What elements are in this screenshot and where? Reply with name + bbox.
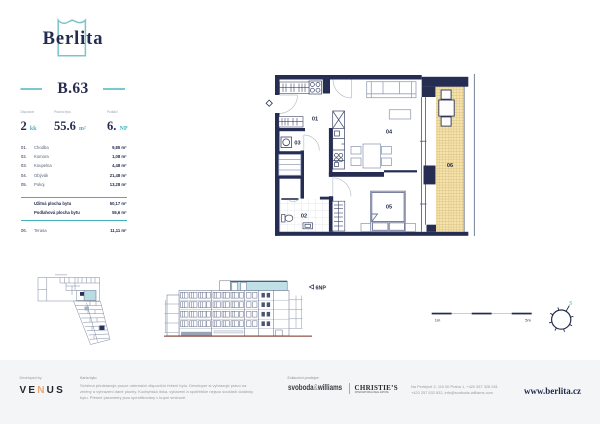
svg-text:04: 04 [386,130,393,136]
svg-text:02: 02 [301,213,307,219]
svg-text:S: S [569,300,572,307]
svg-text:5m: 5m [525,318,531,323]
svg-text:05: 05 [386,204,392,210]
svg-text:03: 03 [294,140,300,146]
svg-text:6NP: 6NP [316,285,327,291]
svg-text:06: 06 [447,163,453,169]
svg-text:1m: 1m [435,318,441,323]
svg-text:01: 01 [312,117,318,123]
